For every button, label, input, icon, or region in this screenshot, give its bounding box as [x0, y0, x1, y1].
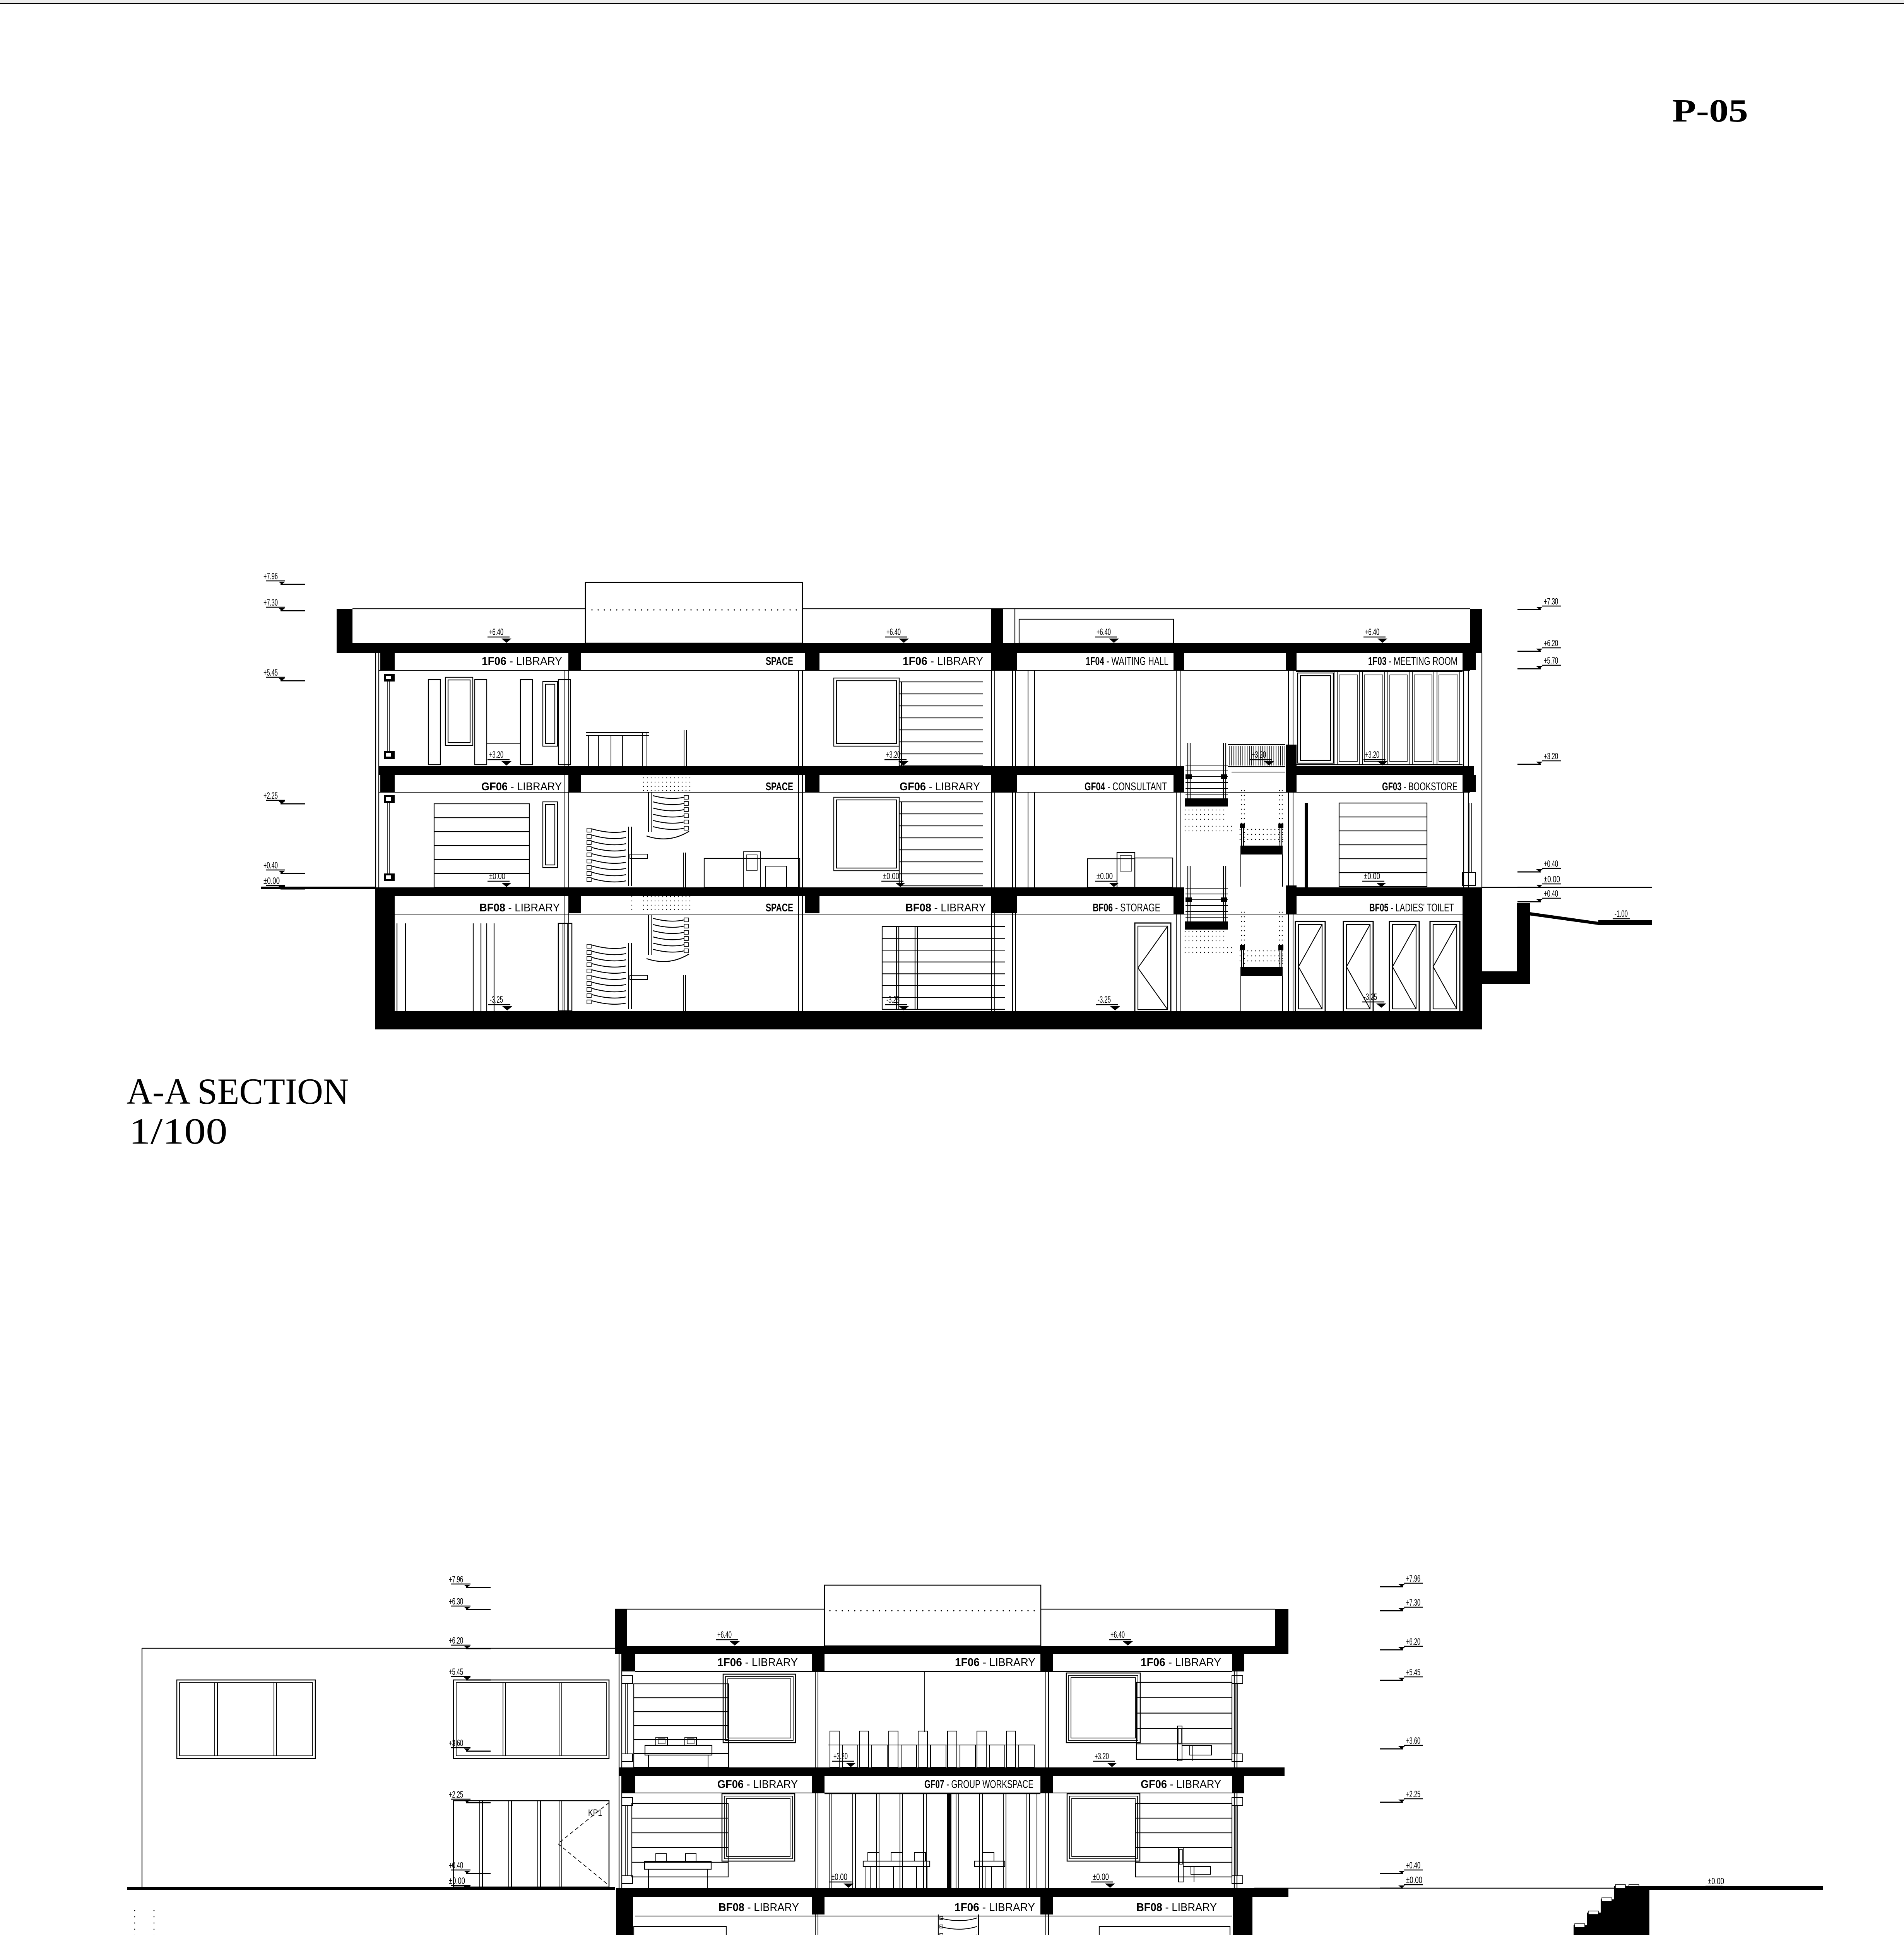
svg-text:+2.25: +2.25 [1406, 1789, 1420, 1800]
svg-text:±0.00: ±0.00 [831, 1872, 847, 1882]
svg-text:+2.25: +2.25 [449, 1789, 463, 1800]
svg-text:+0.40: +0.40 [1406, 1860, 1420, 1871]
svg-text:GF06 - LIBRARY: GF06 - LIBRARY [900, 781, 980, 793]
svg-text:+0.40: +0.40 [263, 860, 278, 871]
svg-text:+7.30: +7.30 [1406, 1598, 1420, 1608]
svg-text:±0.00: ±0.00 [1364, 871, 1380, 882]
svg-text:±0.00: ±0.00 [883, 871, 899, 882]
svg-text:+7.96: +7.96 [1406, 1574, 1420, 1584]
svg-text:+6.40: +6.40 [717, 1630, 732, 1640]
svg-text:+0.40: +0.40 [1544, 859, 1558, 869]
svg-text:+0.40: +0.40 [1544, 889, 1558, 899]
svg-text:+2.25: +2.25 [263, 791, 278, 801]
svg-text:1F06 - LIBRARY: 1F06 - LIBRARY [482, 655, 562, 668]
svg-text:1F06 - LIBRARY: 1F06 - LIBRARY [955, 1656, 1035, 1669]
svg-text:+5.45: +5.45 [263, 668, 278, 678]
svg-text:SPACE: SPACE [766, 655, 793, 668]
svg-text:+5.45: +5.45 [449, 1667, 463, 1677]
svg-text:+3.60: +3.60 [449, 1738, 463, 1748]
svg-text:GF07 - GROUP WORKSPACE: GF07 - GROUP WORKSPACE [924, 1778, 1033, 1791]
svg-text:-3.25: -3.25 [1364, 992, 1377, 1002]
svg-text:KP1: KP1 [588, 1808, 602, 1818]
svg-text:GF06 - LIBRARY: GF06 - LIBRARY [1141, 1778, 1221, 1791]
svg-text:+3.20: +3.20 [1095, 1751, 1109, 1762]
svg-text:+7.96: +7.96 [449, 1574, 463, 1585]
svg-text:BF08 - LIBRARY: BF08 - LIBRARY [479, 902, 560, 914]
svg-text:GF03 - BOOKSTORE: GF03 - BOOKSTORE [1382, 781, 1458, 793]
svg-text:1F06 - LIBRARY: 1F06 - LIBRARY [955, 1901, 1035, 1914]
svg-text:+7.30: +7.30 [1544, 596, 1558, 607]
svg-text:±0.00: ±0.00 [1708, 1876, 1724, 1887]
svg-text:1F06 - LIBRARY: 1F06 - LIBRARY [1141, 1656, 1221, 1669]
svg-text:-3.25: -3.25 [886, 995, 900, 1005]
svg-text:+7.96: +7.96 [263, 571, 278, 582]
svg-text:1F06 - LIBRARY: 1F06 - LIBRARY [717, 1656, 798, 1669]
svg-text:-1.00: -1.00 [1615, 909, 1628, 919]
svg-text:+3.20: +3.20 [1544, 751, 1558, 762]
svg-text:±0.00: ±0.00 [489, 871, 505, 882]
svg-text:A-A SECTION: A-A SECTION [127, 1071, 349, 1112]
svg-text:+3.20: +3.20 [1365, 750, 1379, 760]
svg-text:+3.20: +3.20 [833, 1751, 848, 1762]
svg-text:+6.40: +6.40 [489, 627, 503, 637]
svg-text:GF06 - LIBRARY: GF06 - LIBRARY [717, 1778, 798, 1791]
svg-text:+3.60: +3.60 [1406, 1736, 1420, 1746]
svg-text:±0.00: ±0.00 [263, 876, 280, 886]
svg-text:+6.40: +6.40 [1365, 627, 1379, 637]
svg-text:+3.20: +3.20 [886, 750, 900, 760]
svg-text:+6.20: +6.20 [1406, 1637, 1420, 1647]
svg-text:BF08 - LIBRARY: BF08 - LIBRARY [905, 902, 986, 914]
svg-text:P-05: P-05 [1672, 93, 1748, 129]
svg-text:BF08 - LIBRARY: BF08 - LIBRARY [718, 1901, 799, 1914]
svg-text:SPACE: SPACE [766, 781, 793, 793]
svg-text:SPACE: SPACE [766, 902, 793, 914]
svg-text:±0.00: ±0.00 [1544, 874, 1560, 885]
svg-text:+3.20: +3.20 [1252, 750, 1266, 760]
svg-text:+7.30: +7.30 [263, 598, 278, 608]
svg-text:GF04 - CONSULTANT: GF04 - CONSULTANT [1085, 781, 1167, 793]
svg-text:+5.45: +5.45 [1406, 1667, 1420, 1678]
svg-text:+6.40: +6.40 [1097, 627, 1111, 637]
svg-text:+6.20: +6.20 [1544, 638, 1558, 649]
svg-text:+0.40: +0.40 [449, 1860, 463, 1871]
svg-text:±0.00: ±0.00 [449, 1876, 465, 1886]
svg-text:BF05 - LADIES' TOILET: BF05 - LADIES' TOILET [1369, 902, 1454, 914]
svg-text:+6.20: +6.20 [449, 1635, 463, 1646]
svg-text:1/100: 1/100 [129, 1111, 228, 1152]
svg-text:BF08 - LIBRARY: BF08 - LIBRARY [1136, 1901, 1217, 1914]
svg-text:-3.25: -3.25 [1098, 995, 1111, 1005]
svg-text:+6.30: +6.30 [449, 1596, 463, 1607]
svg-text:BF06 - STORAGE: BF06 - STORAGE [1093, 902, 1160, 914]
svg-text:-3.25: -3.25 [490, 995, 503, 1005]
svg-text:1F04 - WAITING HALL: 1F04 - WAITING HALL [1086, 655, 1168, 668]
svg-text:GF06 - LIBRARY: GF06 - LIBRARY [481, 781, 562, 793]
svg-text:+6.40: +6.40 [886, 627, 901, 637]
svg-text:1F03 - MEETING ROOM: 1F03 - MEETING ROOM [1368, 655, 1458, 668]
svg-text:±0.00: ±0.00 [1097, 871, 1113, 882]
svg-text:1F06 - LIBRARY: 1F06 - LIBRARY [903, 655, 983, 668]
svg-text:+5.70: +5.70 [1544, 656, 1558, 666]
svg-text:±0.00: ±0.00 [1093, 1872, 1109, 1882]
svg-text:+6.40: +6.40 [1110, 1630, 1125, 1640]
svg-text:+3.20: +3.20 [489, 750, 503, 760]
svg-text:±0.00: ±0.00 [1406, 1875, 1422, 1885]
